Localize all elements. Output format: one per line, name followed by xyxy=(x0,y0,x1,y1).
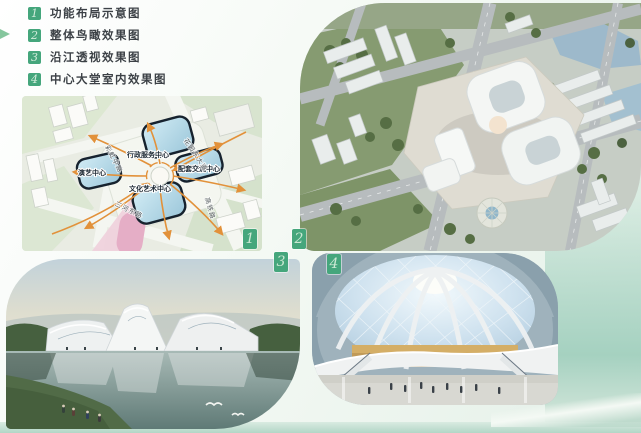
legend-arrow-icon xyxy=(0,29,10,39)
legend-item-label: 功能布局示意图 xyxy=(50,5,141,21)
aerial-view-figure xyxy=(300,3,641,251)
legend-item-label: 沿江透视效果图 xyxy=(50,49,141,65)
legend-item-2: 2 整体鸟瞰效果图 xyxy=(28,28,167,42)
legend: 1 功能布局示意图 2 整体鸟瞰效果图 3 沿江透视效果图 4 中心大堂室内效果… xyxy=(28,6,167,94)
fountain-plaza xyxy=(477,198,507,228)
figure-number-badge-1: 1 xyxy=(243,229,257,249)
lobby-interior-svg xyxy=(312,253,558,405)
legend-item-3: 3 沿江透视效果图 xyxy=(28,50,167,64)
site-plan-figure: 行政服务中心 配套交流中心 演艺中心 文化艺术中心 花园东大道 三河东路 彩虹中… xyxy=(22,96,262,251)
aerial-view-svg xyxy=(300,3,641,251)
legend-number-badge: 2 xyxy=(28,29,41,42)
legend-number-badge: 3 xyxy=(28,51,41,64)
culture-arts-label: 文化艺术中心 xyxy=(129,184,171,193)
riverside-view-svg xyxy=(6,259,300,429)
figure-number-badge-4: 4 xyxy=(327,254,341,274)
lobby-interior-figure xyxy=(312,253,558,405)
riverside-view-figure xyxy=(6,259,300,429)
legend-item-label: 整体鸟瞰效果图 xyxy=(50,27,141,43)
admin-center-label: 行政服务中心 xyxy=(126,150,169,159)
legend-item-4: 4 中心大堂室内效果图 xyxy=(28,72,167,86)
figure-number-badge-3: 3 xyxy=(274,252,288,272)
figure-number-badge-2: 2 xyxy=(292,229,306,249)
legend-item-1: 1 功能布局示意图 xyxy=(28,6,167,20)
site-plan-svg: 行政服务中心 配套交流中心 演艺中心 文化艺术中心 花园东大道 三河东路 彩虹中… xyxy=(22,96,262,251)
performing-arts-label: 演艺中心 xyxy=(78,168,106,177)
atrium-glow xyxy=(489,116,507,134)
legend-number-badge: 1 xyxy=(28,7,41,20)
presentation-board: 1 功能布局示意图 2 整体鸟瞰效果图 3 沿江透视效果图 4 中心大堂室内效果… xyxy=(0,0,641,433)
legend-number-badge: 4 xyxy=(28,73,41,86)
legend-item-label: 中心大堂室内效果图 xyxy=(50,71,167,87)
